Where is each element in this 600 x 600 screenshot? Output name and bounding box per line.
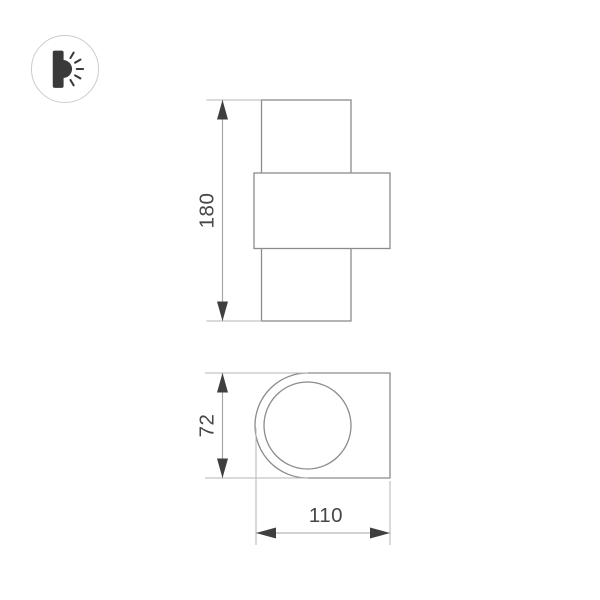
side-body-shape [255,373,390,478]
front-view: 180 [196,100,391,321]
arrow-up-icon [217,373,228,393]
side-width-label: 110 [309,504,343,527]
arrow-right-icon [370,528,390,539]
technical-drawing: 180 72 [0,0,600,600]
arrow-down-icon [217,459,228,479]
side-height-label: 72 [196,414,219,438]
front-height-label: 180 [196,193,219,229]
arrow-down-icon [217,302,228,322]
arrow-left-icon [256,528,276,539]
front-plate-shape [254,173,390,249]
front-height-dimension: 180 [196,100,262,321]
arrow-up-icon [217,100,228,120]
product-dimension-drawing: 180 72 [0,0,600,600]
side-view: 72 110 [196,373,391,545]
